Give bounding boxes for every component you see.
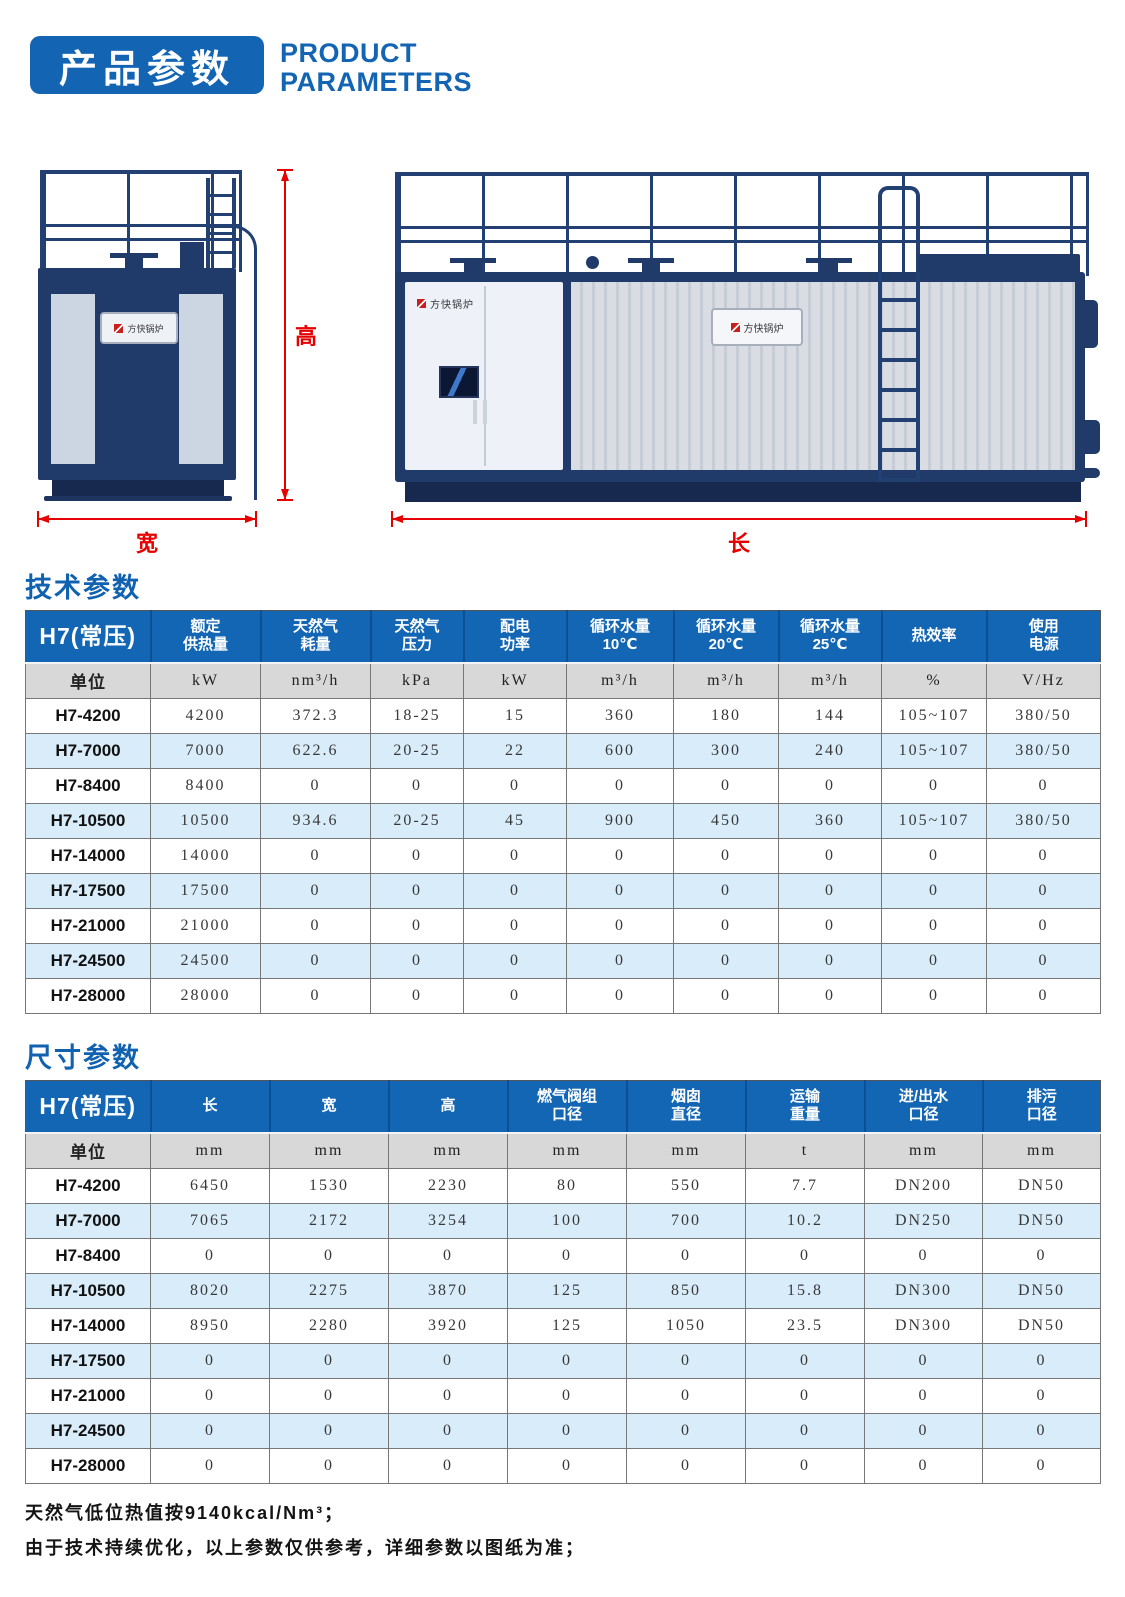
column-header: 额定 供热量 [151,611,261,663]
table-row: H7-210002100000000000 [26,909,1101,944]
data-cell: 0 [865,1379,983,1414]
column-header: 高 [389,1081,508,1133]
data-cell: 0 [779,909,882,944]
unit-cell: m³/h [779,663,882,699]
data-cell: 300 [674,734,779,769]
column-header: 进/出水 口径 [865,1081,983,1133]
data-cell: 0 [983,1239,1101,1274]
control-cabinet: 方快锅炉 [405,282,563,470]
unit-cell: mm [151,1133,270,1169]
table-row: H7-2450000000000 [26,1414,1101,1449]
data-cell: 7065 [151,1204,270,1239]
data-cell: 0 [371,874,464,909]
data-cell: 0 [627,1379,746,1414]
width-dimension-label: 宽 [38,526,256,558]
column-header: 天然气 耗量 [261,611,371,663]
front-boiler-body: 方快锅炉 [38,268,236,480]
table-row: H7-8400840000000000 [26,769,1101,804]
data-cell: 360 [567,699,674,734]
data-cell: 0 [567,874,674,909]
data-cell: 0 [464,944,567,979]
width-dimension: 宽 [38,518,256,520]
table-row: H7-700070652172325410070010.2DN250DN50 [26,1204,1101,1239]
data-cell: 0 [746,1414,865,1449]
data-cell: 0 [882,839,987,874]
unit-cell: m³/h [674,663,779,699]
row-label: H7-14000 [26,839,151,874]
data-cell: 105~107 [882,804,987,839]
data-cell: 0 [270,1379,389,1414]
side-roof-valve [586,256,599,269]
column-header: 循环水量 10℃ [567,611,674,663]
side-ladder [878,272,920,484]
height-dimension-label: 高 [295,319,317,351]
data-cell: 372.3 [261,699,371,734]
data-cell: 0 [508,1379,627,1414]
data-cell: 4200 [151,699,261,734]
length-dimension-label: 长 [392,526,1086,558]
unit-cell: nm³/h [261,663,371,699]
data-cell: 0 [674,909,779,944]
data-cell: 28000 [151,979,261,1014]
side-roof-flange [450,258,496,263]
dim-section-title: 尺寸参数 [25,1036,141,1075]
table-row: H7-840000000000 [26,1239,1101,1274]
data-cell: 0 [508,1414,627,1449]
front-roof-box [180,242,204,268]
corrugated-panel: 方快锅炉 [571,282,1075,470]
column-header: 使用 电源 [987,611,1101,663]
row-label: H7-28000 [26,1449,151,1484]
data-cell: 0 [779,944,882,979]
data-cell: DN250 [865,1204,983,1239]
row-label: H7-28000 [26,979,151,1014]
unit-cell: t [746,1133,865,1169]
data-cell: 0 [674,944,779,979]
data-cell: 240 [779,734,882,769]
footer-notes: 天然气低位热值按9140kcal/Nm³； 由于技术持续优化，以上参数仅供参考，… [25,1496,585,1566]
data-cell: 0 [983,1379,1101,1414]
data-cell: 360 [779,804,882,839]
data-cell: DN200 [865,1169,983,1204]
data-cell: 0 [779,979,882,1014]
data-cell: 105~107 [882,699,987,734]
data-cell: 0 [151,1239,270,1274]
data-cell: 622.6 [261,734,371,769]
data-cell: 0 [746,1449,865,1484]
data-cell: 0 [567,769,674,804]
unit-cell: m³/h [567,663,674,699]
side-pipe-flange [1082,468,1100,478]
front-base-skid [44,496,232,501]
data-cell: 0 [371,839,464,874]
data-cell: 0 [464,769,567,804]
data-cell: 0 [987,769,1101,804]
front-handrail [210,225,257,500]
data-cell: 0 [389,1449,508,1484]
data-cell: 80 [508,1169,627,1204]
data-cell: 18-25 [371,699,464,734]
data-cell: 0 [983,1344,1101,1379]
data-cell: 100 [508,1204,627,1239]
data-cell: 0 [746,1239,865,1274]
side-base [405,482,1081,502]
unit-row-label: 单位 [26,1133,151,1169]
data-cell: 0 [865,1449,983,1484]
data-cell: 125 [508,1274,627,1309]
row-label: H7-4200 [26,699,151,734]
data-cell: 0 [464,979,567,1014]
data-cell: 0 [389,1379,508,1414]
data-cell: 0 [627,1414,746,1449]
row-label: H7-21000 [26,909,151,944]
unit-row-label: 单位 [26,663,151,699]
row-label: H7-7000 [26,734,151,769]
brand-name: 方快锅炉 [127,322,163,335]
brand-logo-icon [731,323,740,332]
side-pipe-flange [1085,300,1098,348]
data-cell: 2172 [270,1204,389,1239]
data-cell: 0 [882,909,987,944]
table-row: H7-280002800000000000 [26,979,1101,1014]
data-cell: 0 [389,1414,508,1449]
table-row: H7-1750000000000 [26,1344,1101,1379]
data-cell: 22 [464,734,567,769]
note-line: 由于技术持续优化，以上参数仅供参考，详细参数以图纸为准； [25,1531,585,1566]
data-cell: 0 [882,874,987,909]
data-cell: 0 [882,979,987,1014]
unit-cell: V/Hz [987,663,1101,699]
unit-cell: mm [270,1133,389,1169]
data-cell: 8950 [151,1309,270,1344]
table-corner-label: H7(常压) [26,611,151,663]
table-row: H7-175001750000000000 [26,874,1101,909]
row-label: H7-21000 [26,1379,151,1414]
front-nameplate: 方快锅炉 [100,312,178,344]
height-dimension: 高 [284,170,286,500]
row-label: H7-17500 [26,1344,151,1379]
data-cell: 850 [627,1274,746,1309]
data-cell: 144 [779,699,882,734]
data-cell: 0 [371,769,464,804]
data-cell: 0 [674,769,779,804]
row-label: H7-17500 [26,874,151,909]
column-header: 烟囱 直径 [627,1081,746,1133]
table-row: H7-245002450000000000 [26,944,1101,979]
product-parameters-page: 产品参数 PRODUCT PARAMETERS 方快锅炉 [0,0,1125,1597]
column-header: 天然气 压力 [371,611,464,663]
unit-cell: mm [983,1133,1101,1169]
table-row: H7-42004200372.318-2515360180144105~1073… [26,699,1101,734]
data-cell: 0 [464,839,567,874]
brand-name: 方快锅炉 [430,296,474,311]
side-roof-flange [806,258,852,263]
data-cell: 0 [746,1379,865,1414]
data-cell: 0 [746,1344,865,1379]
unit-cell: mm [627,1133,746,1169]
data-cell: 0 [151,1414,270,1449]
page-subtitle: PRODUCT PARAMETERS [280,39,472,96]
page-title-badge: 产品参数 [30,36,264,94]
unit-cell: % [882,663,987,699]
data-cell: 0 [464,874,567,909]
cabinet-brand: 方快锅炉 [417,296,474,311]
column-header: 配电 功率 [464,611,567,663]
boiler-diagrams: 方快锅炉 高 宽 [0,150,1125,570]
data-cell: 0 [674,874,779,909]
data-cell: 24500 [151,944,261,979]
brand-name: 方快锅炉 [744,320,784,335]
table-row: H7-14000895022803920125105023.5DN300DN50 [26,1309,1101,1344]
data-cell: 8020 [151,1274,270,1309]
data-cell: 15.8 [746,1274,865,1309]
data-cell: 450 [674,804,779,839]
unit-cell: kW [151,663,261,699]
data-cell: 0 [674,839,779,874]
data-cell: 0 [261,909,371,944]
data-cell: 0 [627,1344,746,1379]
data-cell: 0 [627,1449,746,1484]
data-cell: 15 [464,699,567,734]
data-cell: 3870 [389,1274,508,1309]
table-row: H7-140001400000000000 [26,839,1101,874]
data-cell: 0 [567,839,674,874]
data-cell: 0 [151,1379,270,1414]
data-cell: 7.7 [746,1169,865,1204]
data-cell: 20-25 [371,734,464,769]
data-cell: DN50 [983,1169,1101,1204]
table-corner-label: H7(常压) [26,1081,151,1133]
data-cell: 0 [151,1449,270,1484]
column-header: 循环水量 20℃ [674,611,779,663]
front-left-panel [51,294,95,464]
data-cell: 0 [508,1449,627,1484]
data-cell: 2275 [270,1274,389,1309]
table-row: H7-70007000622.620-2522600300240105~1073… [26,734,1101,769]
data-cell: DN50 [983,1274,1101,1309]
side-pipe-flange [1085,420,1100,454]
data-cell: 21000 [151,909,261,944]
data-cell: 0 [567,909,674,944]
data-cell: 0 [389,1239,508,1274]
data-cell: 0 [261,769,371,804]
tech-section-title: 技术参数 [25,566,141,605]
data-cell: 0 [270,1449,389,1484]
technical-parameters-table: H7(常压)额定 供热量天然气 耗量天然气 压力配电 功率循环水量 10℃循环水… [25,610,1101,1014]
data-cell: 0 [987,944,1101,979]
data-cell: 0 [270,1414,389,1449]
data-cell: 7000 [151,734,261,769]
table-row: H7-2800000000000 [26,1449,1101,1484]
data-cell: 380/50 [987,734,1101,769]
data-cell: 0 [674,979,779,1014]
row-label: H7-14000 [26,1309,151,1344]
data-cell: 0 [779,874,882,909]
data-cell: 20-25 [371,804,464,839]
data-cell: 700 [627,1204,746,1239]
data-cell: 0 [987,874,1101,909]
row-label: H7-4200 [26,1169,151,1204]
front-roof-flange [110,253,158,258]
row-label: H7-24500 [26,944,151,979]
data-cell: 0 [151,1344,270,1379]
data-cell: 0 [779,839,882,874]
data-cell: 0 [865,1239,983,1274]
data-cell: 10.2 [746,1204,865,1239]
data-cell: 6450 [151,1169,270,1204]
table-row: H7-1050080202275387012585015.8DN300DN50 [26,1274,1101,1309]
unit-cell: mm [865,1133,983,1169]
data-cell: 0 [987,979,1101,1014]
data-cell: 0 [779,769,882,804]
side-boiler-body: 方快锅炉 方快锅炉 [395,272,1085,482]
data-cell: 0 [567,979,674,1014]
data-cell: 0 [987,909,1101,944]
data-cell: 3254 [389,1204,508,1239]
data-cell: 0 [261,944,371,979]
data-cell: 900 [567,804,674,839]
data-cell: 600 [567,734,674,769]
data-cell: DN50 [983,1204,1101,1239]
row-label: H7-24500 [26,1414,151,1449]
cabinet-door-divider [484,286,486,466]
brand-logo-icon [417,299,426,308]
table-row: H7-2100000000000 [26,1379,1101,1414]
side-nameplate: 方快锅炉 [711,308,803,346]
data-cell: DN300 [865,1274,983,1309]
data-cell: DN300 [865,1309,983,1344]
brand-logo-icon [114,324,123,333]
unit-cell: kPa [371,663,464,699]
data-cell: 0 [508,1344,627,1379]
data-cell: 8400 [151,769,261,804]
data-cell: 0 [882,769,987,804]
unit-cell: kW [464,663,567,699]
data-cell: 0 [371,909,464,944]
data-cell: 0 [627,1239,746,1274]
table-row: H7-4200645015302230805507.7DN200DN50 [26,1169,1101,1204]
data-cell: 14000 [151,839,261,874]
data-cell: 0 [983,1449,1101,1484]
data-cell: 17500 [151,874,261,909]
data-cell: DN50 [983,1309,1101,1344]
column-header: 热效率 [882,611,987,663]
data-cell: 2280 [270,1309,389,1344]
column-header: 运输 重量 [746,1081,865,1133]
unit-cell: mm [508,1133,627,1169]
row-label: H7-8400 [26,769,151,804]
column-header: 排污 口径 [983,1081,1101,1133]
data-cell: 0 [261,874,371,909]
data-cell: 380/50 [987,699,1101,734]
cabinet-handles [473,400,491,424]
data-cell: 0 [270,1344,389,1379]
data-cell: 0 [389,1344,508,1379]
side-ladder-handrail [878,186,920,276]
data-cell: 1050 [627,1309,746,1344]
data-cell: 45 [464,804,567,839]
data-cell: 0 [865,1344,983,1379]
column-header: 长 [151,1081,270,1133]
data-cell: 380/50 [987,804,1101,839]
row-label: H7-10500 [26,1274,151,1309]
column-header: 燃气阀组 口径 [508,1081,627,1133]
column-header: 宽 [270,1081,389,1133]
length-dimension: 长 [392,518,1086,520]
data-cell: 10500 [151,804,261,839]
data-cell: 3920 [389,1309,508,1344]
row-label: H7-7000 [26,1204,151,1239]
data-cell: 0 [567,944,674,979]
data-cell: 125 [508,1309,627,1344]
row-label: H7-10500 [26,804,151,839]
unit-cell: mm [389,1133,508,1169]
data-cell: 550 [627,1169,746,1204]
dimension-parameters-table: H7(常压)长宽高燃气阀组 口径烟囱 直径运输 重量进/出水 口径排污 口径单位… [25,1080,1101,1484]
data-cell: 0 [865,1414,983,1449]
data-cell: 0 [371,944,464,979]
data-cell: 0 [983,1414,1101,1449]
note-line: 天然气低位热值按9140kcal/Nm³； [25,1496,585,1531]
side-roof-flange [628,258,674,263]
data-cell: 0 [464,909,567,944]
data-cell: 105~107 [882,734,987,769]
data-cell: 1530 [270,1169,389,1204]
front-base [52,480,224,496]
data-cell: 0 [270,1239,389,1274]
control-screen [439,366,479,398]
table-row: H7-1050010500934.620-2545900450360105~10… [26,804,1101,839]
data-cell: 23.5 [746,1309,865,1344]
data-cell: 0 [261,979,371,1014]
data-cell: 180 [674,699,779,734]
data-cell: 0 [987,839,1101,874]
data-cell: 0 [371,979,464,1014]
data-cell: 934.6 [261,804,371,839]
data-cell: 0 [261,839,371,874]
column-header: 循环水量 25℃ [779,611,882,663]
data-cell: 0 [508,1239,627,1274]
row-label: H7-8400 [26,1239,151,1274]
data-cell: 0 [882,944,987,979]
data-cell: 2230 [389,1169,508,1204]
